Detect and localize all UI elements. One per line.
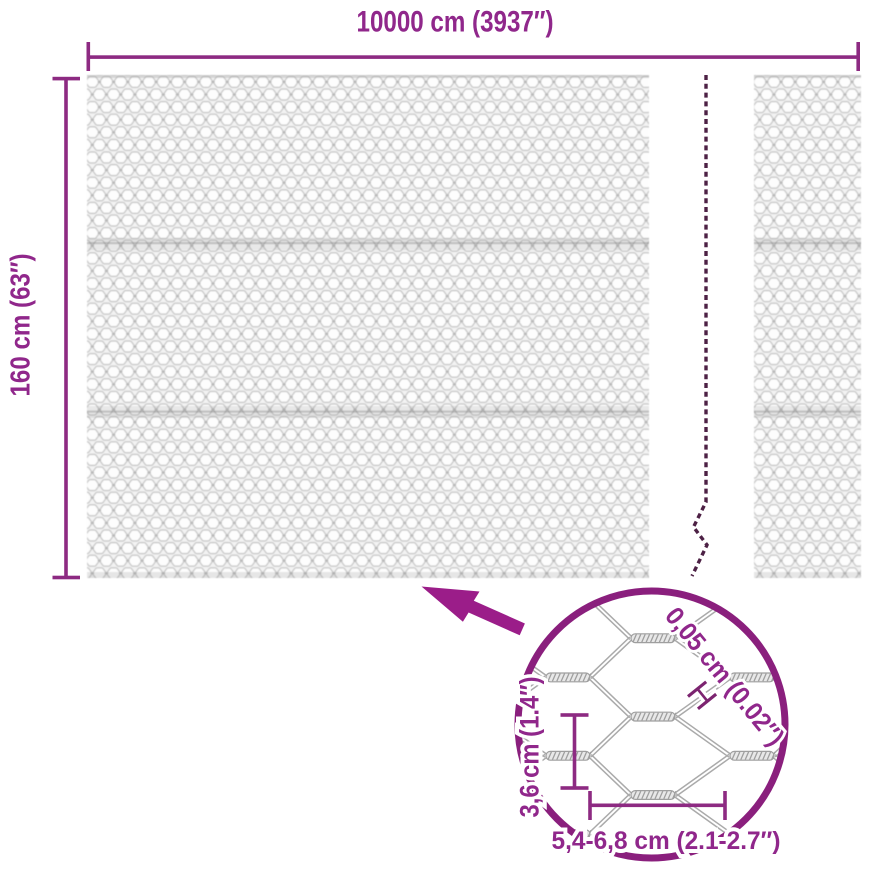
svg-text:160 cm (63″): 160 cm (63″) xyxy=(5,254,36,397)
svg-text:3,6 cm (1.4″): 3,6 cm (1.4″) xyxy=(515,677,545,818)
svg-text:10000 cm (3937″): 10000 cm (3937″) xyxy=(357,6,554,39)
svg-text:5,4-6,8 cm (2.1-2.7″): 5,4-6,8 cm (2.1-2.7″) xyxy=(552,827,781,855)
